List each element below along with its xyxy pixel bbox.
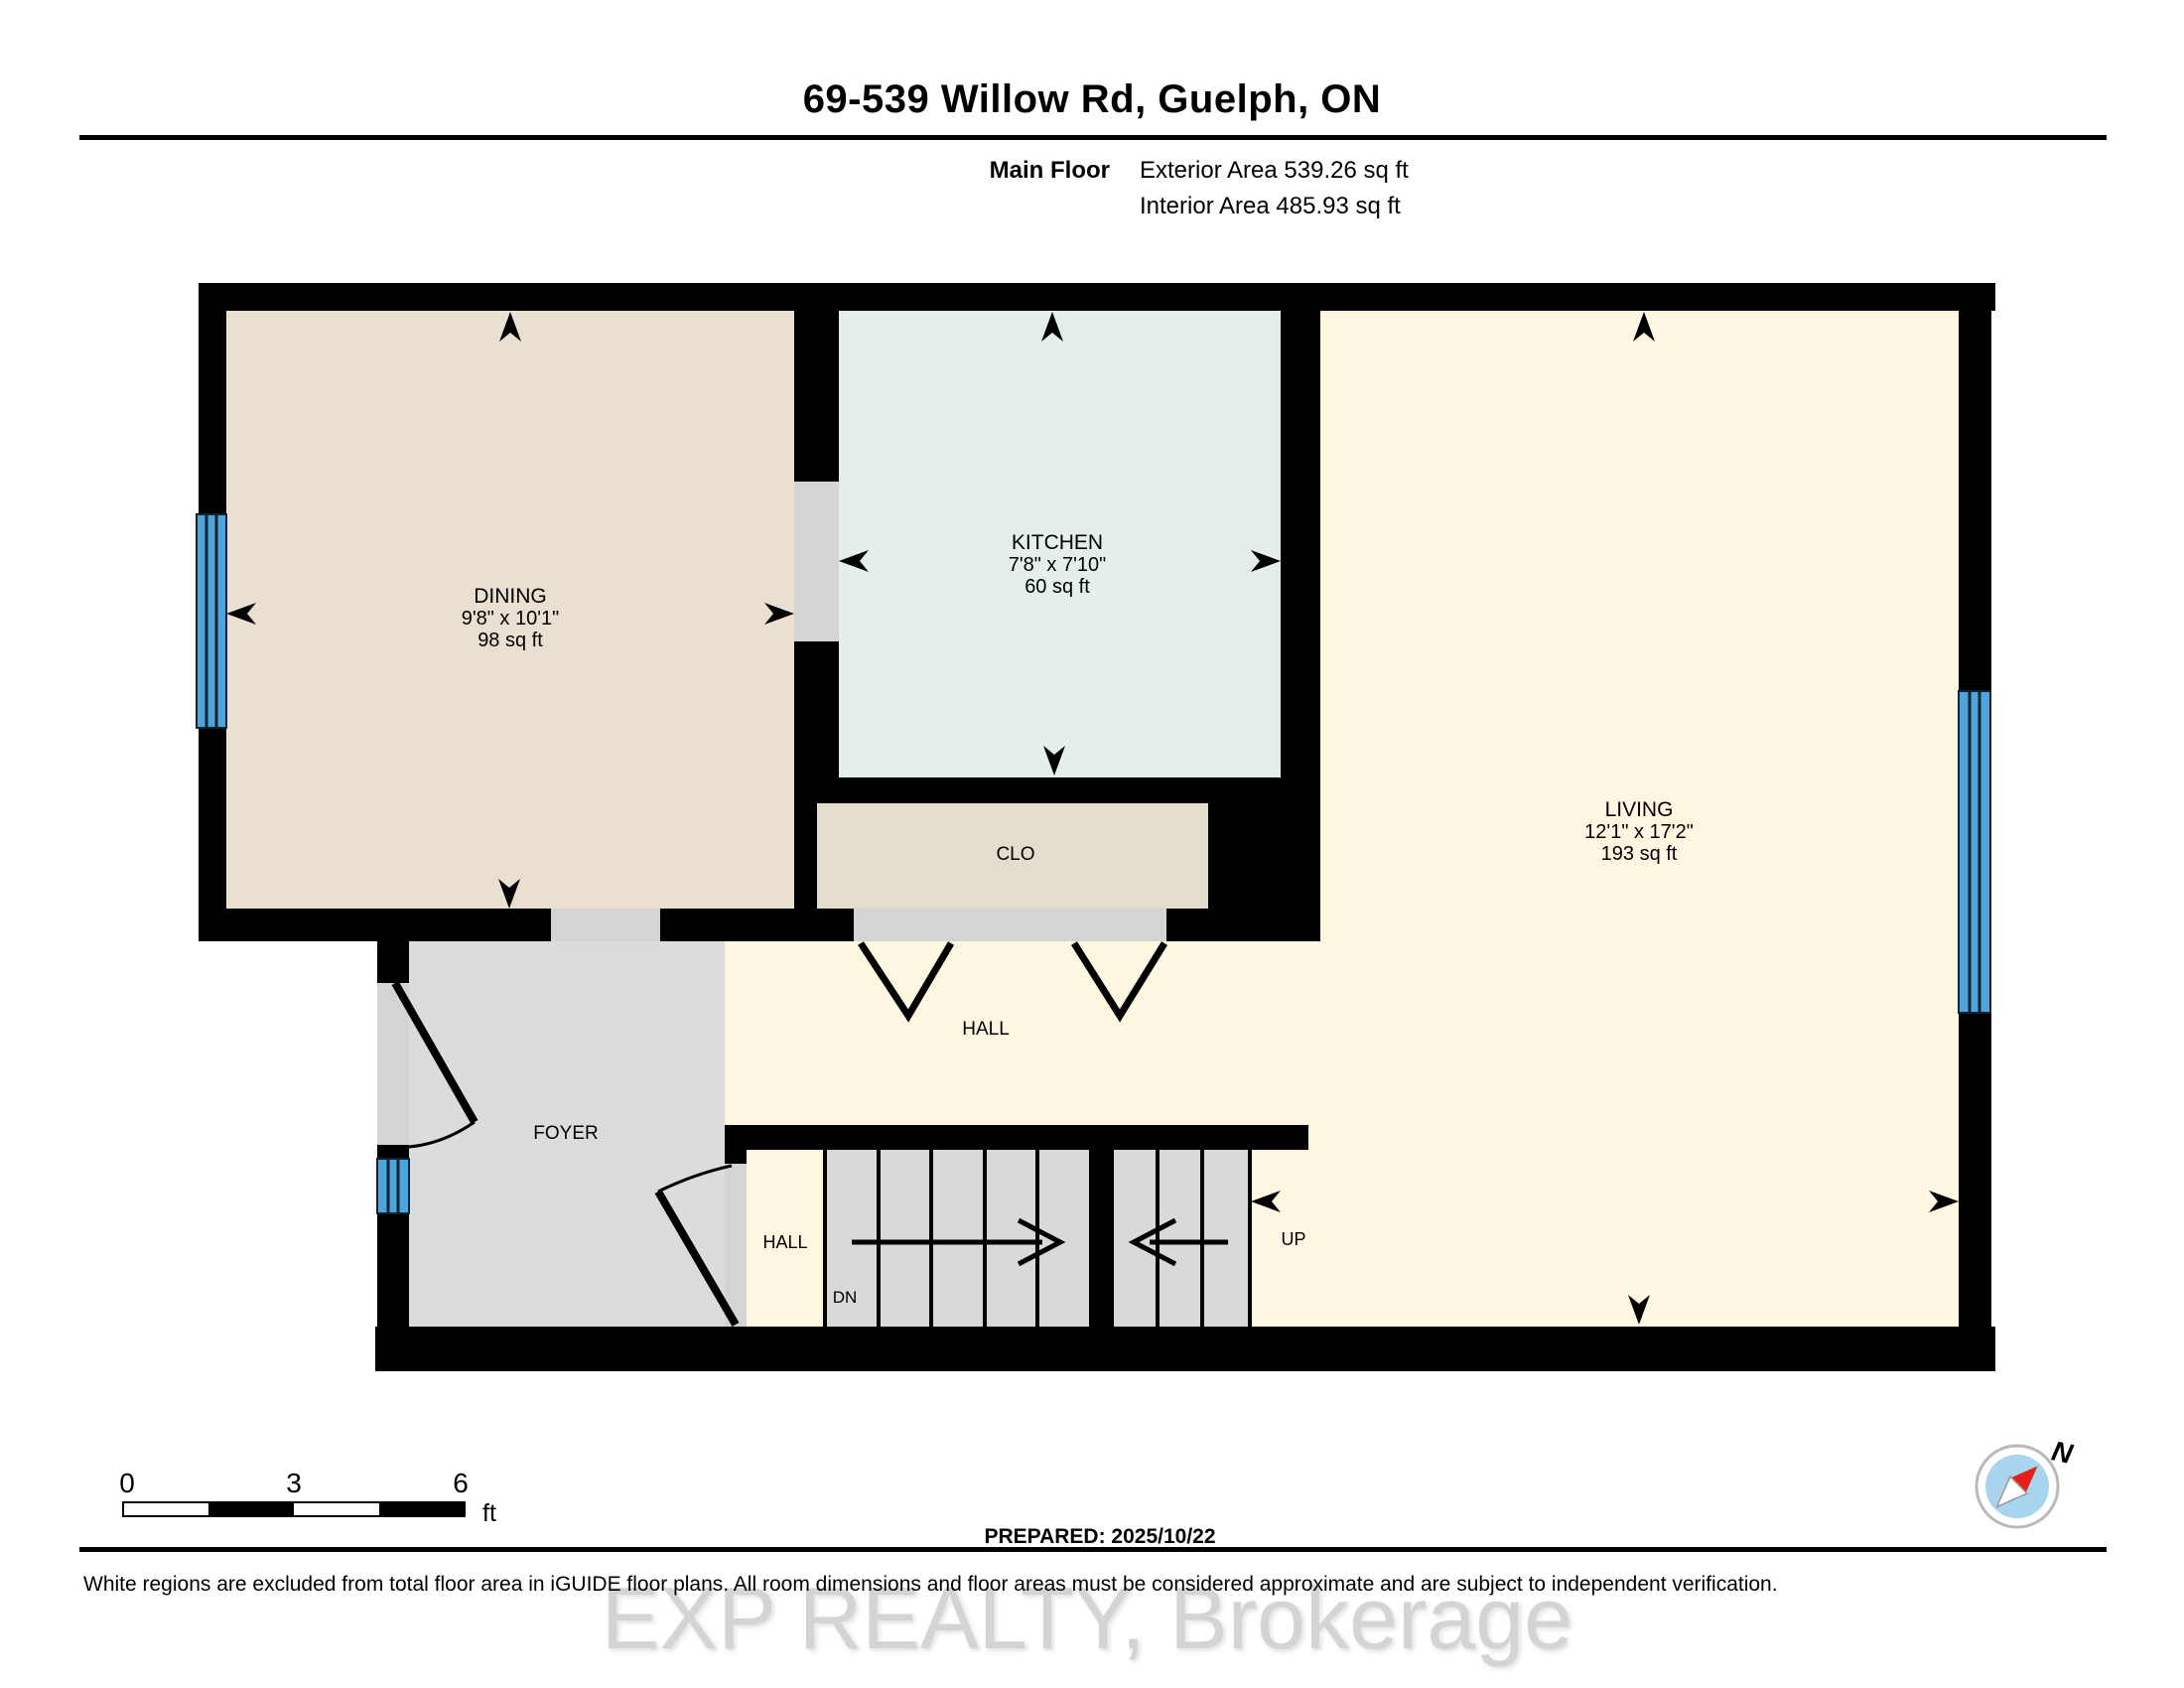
scale-mid: 3 (286, 1468, 302, 1498)
wall-stairs-top (725, 1125, 1308, 1150)
floorplan-drawing: DINING 9'8" x 10'1" 98 sq ft KITCHEN 7'8… (0, 0, 2184, 1688)
hall-label: HALL (962, 1019, 1010, 1040)
foyer-label: FOYER (533, 1123, 598, 1144)
window-living-right (1959, 691, 1990, 1013)
dining-dims: 9'8" x 10'1" (462, 608, 560, 630)
wall-right-lower (1959, 1013, 1991, 1371)
living-strip (1308, 1125, 1320, 1327)
wall-kitchen-bottom (817, 777, 1208, 803)
wall-top (199, 283, 1995, 311)
kitchen-label: KITCHEN (1012, 531, 1103, 554)
entry-door-opening (377, 983, 409, 1145)
scale-end: 6 (453, 1468, 469, 1498)
compass-north-label: N (2049, 1435, 2076, 1470)
wall-foyer-left-stub2 (377, 1145, 409, 1159)
wall-living-left (1281, 283, 1320, 941)
dining-kitchen-opening (794, 482, 839, 641)
foyer-hall-door-opening (725, 1164, 747, 1327)
closet-opening (854, 909, 1166, 941)
wall-left-mid (199, 728, 226, 909)
dining-foyer-opening (551, 909, 660, 941)
prepared-date: PREPARED: 2025/10/22 (984, 1525, 1215, 1549)
scale-bar: 0 3 6 ft (119, 1468, 496, 1527)
compass-icon: N (1977, 1435, 2076, 1527)
hall-lower-label: HALL (762, 1232, 807, 1252)
footer-divider (79, 1547, 2107, 1552)
wall-right-upper (1959, 283, 1991, 691)
scale-bar-segment (379, 1502, 465, 1516)
window-foyer-left (377, 1159, 409, 1213)
living-dims: 12'1" x 17'2" (1584, 821, 1694, 843)
kitchen-area: 60 sq ft (1024, 576, 1090, 598)
scale-zero: 0 (119, 1468, 135, 1498)
wall-foyer-left-lower (377, 1213, 409, 1327)
wall-dining-bottom-right (660, 909, 854, 941)
window-dining-left (197, 514, 226, 728)
closet-label: CLO (996, 844, 1034, 865)
kitchen-dims: 7'8" x 7'10" (1009, 554, 1107, 576)
dining-label: DINING (474, 585, 547, 608)
footer-disclaimer: White regions are excluded from total fl… (83, 1573, 1778, 1597)
living-area: 193 sq ft (1601, 843, 1678, 865)
stairs-up-label: UP (1281, 1229, 1305, 1249)
dining-area: 98 sq ft (478, 630, 543, 651)
wall-foyer-left-stub (377, 909, 409, 983)
floorplan-page: 69-539 Willow Rd, Guelph, ON Main Floor … (0, 0, 2184, 1688)
hall-area (725, 941, 1320, 1125)
wall-closet-left (794, 803, 817, 941)
wall-dining-bottom-left (199, 909, 551, 941)
stairs-up-area (1114, 1150, 1252, 1327)
wall-closet-bottom-right (1166, 909, 1208, 941)
wall-stair-divider (1089, 1145, 1114, 1327)
living-label: LIVING (1605, 798, 1674, 821)
wall-bottom (375, 1327, 1995, 1371)
wall-left-upper (199, 283, 226, 514)
wall-dining-kitchen-upper (794, 309, 839, 482)
wall-door-stub (725, 1150, 747, 1164)
scale-bar-segment (208, 1502, 294, 1516)
stairs-down-label: DN (833, 1288, 858, 1307)
scale-unit: ft (482, 1499, 496, 1527)
